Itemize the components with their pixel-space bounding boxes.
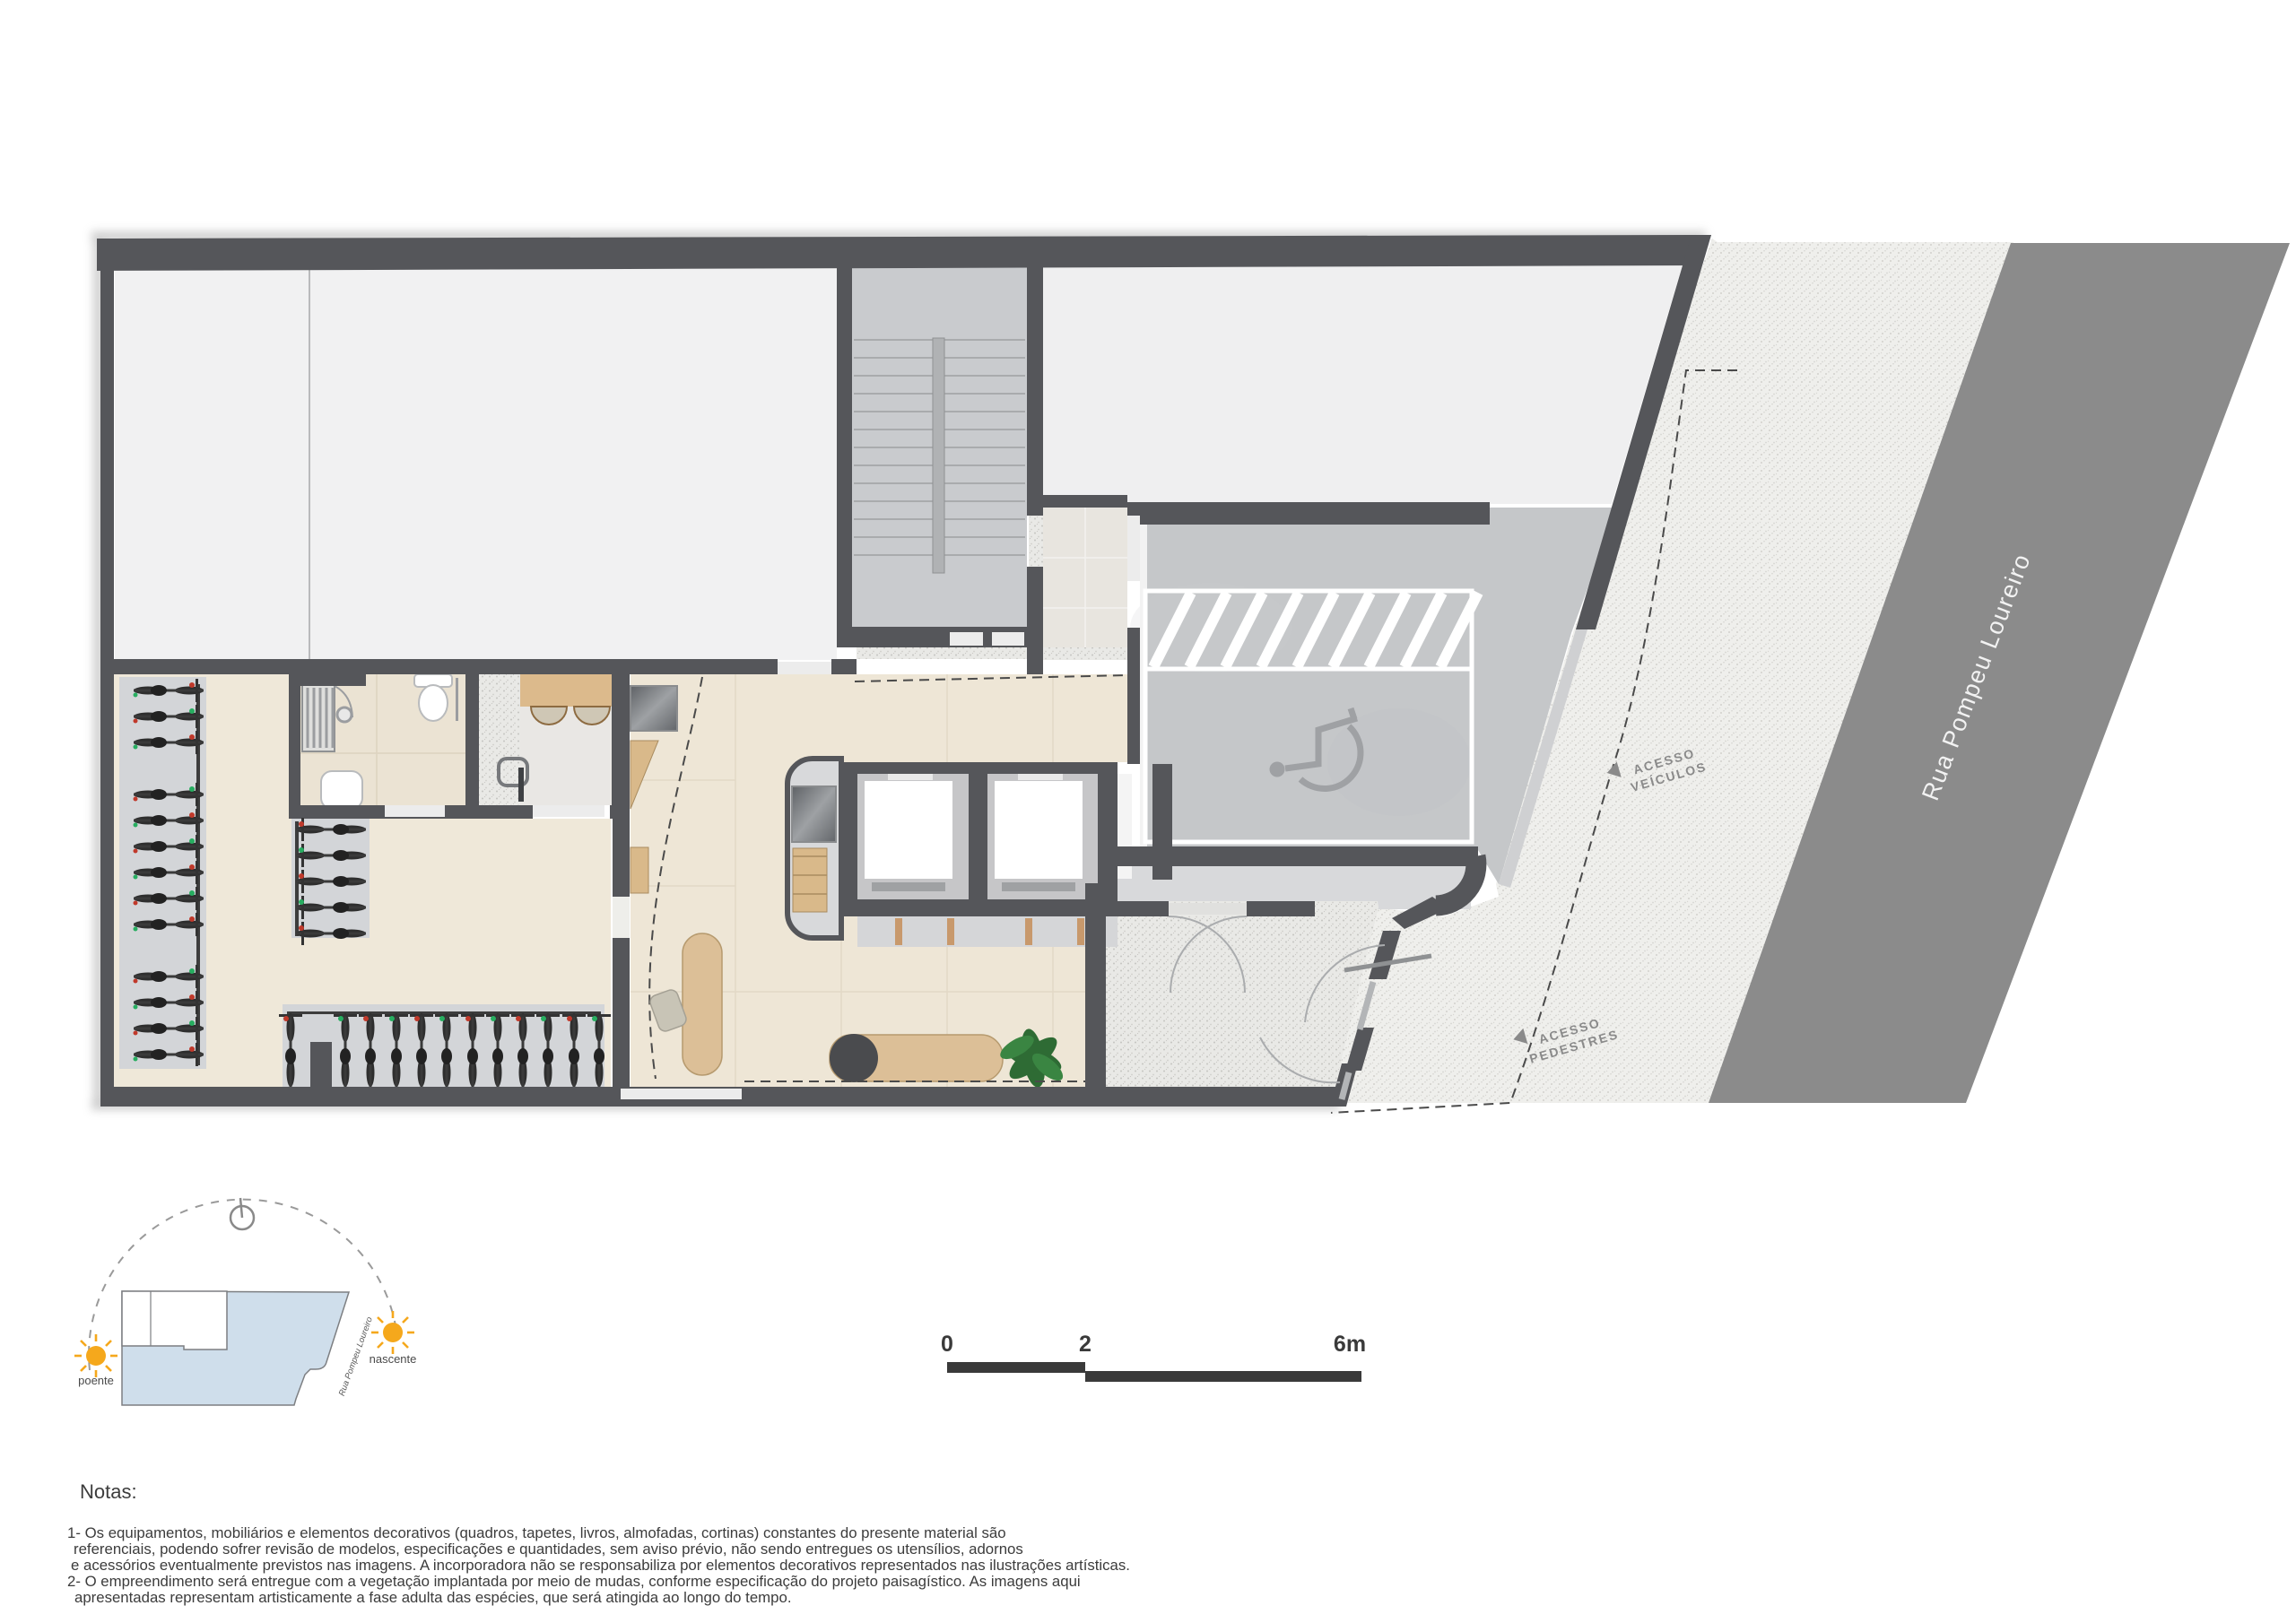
svg-text:2- O empreendimento será entre: 2- O empreendimento será entregue com a …: [67, 1573, 1081, 1590]
svg-text:poente: poente: [78, 1374, 114, 1387]
svg-text:6m: 6m: [1334, 1332, 1366, 1357]
svg-text:apresentadas representam artis: apresentadas representam artisticamente …: [74, 1589, 791, 1606]
svg-text:0: 0: [941, 1332, 953, 1357]
svg-text:1- Os equipamentos, mobiliário: 1- Os equipamentos, mobiliários e elemen…: [67, 1524, 1006, 1541]
svg-text:Notas:: Notas:: [80, 1480, 137, 1503]
svg-text:referenciais, podendo sofrer r: referenciais, podendo sofrer revisão de …: [74, 1541, 1023, 1558]
svg-text:2: 2: [1079, 1332, 1091, 1357]
svg-text:nascente: nascente: [370, 1352, 417, 1366]
svg-text:e acessórios eventualmente pre: e acessórios eventualmente previstos nas…: [71, 1557, 1130, 1574]
